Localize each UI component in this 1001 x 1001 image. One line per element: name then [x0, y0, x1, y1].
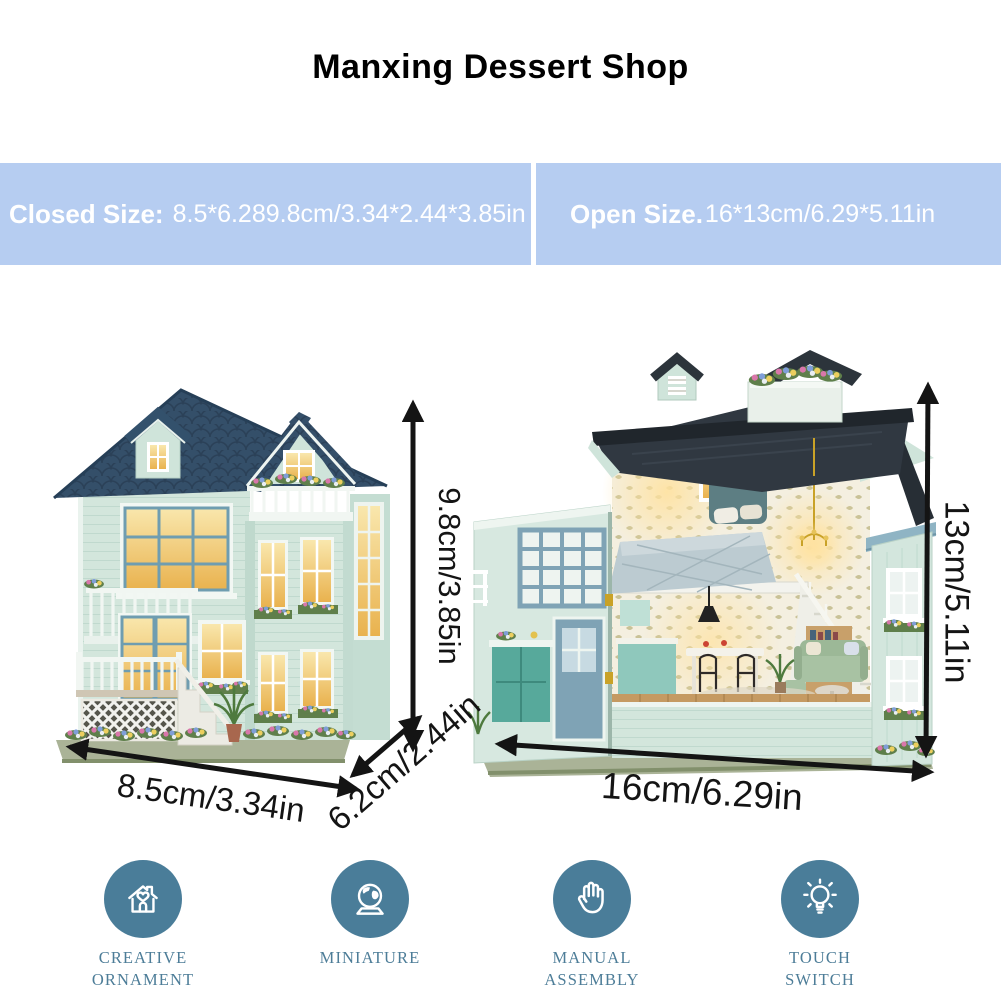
page-title: Manxing Dessert Shop — [0, 48, 1001, 87]
house-heart-icon — [104, 860, 182, 938]
side-wall — [350, 494, 390, 740]
left-door-wing — [462, 505, 613, 763]
closed-size-banner: Closed Size: 8.5*6.289.8cm/3.34*2.44*3.8… — [0, 163, 531, 265]
product-image: Manxing Dessert Shop Closed Size: 8.5*6.… — [0, 0, 1001, 1001]
manual-hand-icon — [553, 860, 631, 938]
open-size-banner: Open Size. 16*13cm/6.29*5.11in — [536, 163, 1001, 265]
feature-creative-ornament: CREATIVE ORNAMENT — [48, 860, 238, 992]
closed-height-dimension: 9.8cm/3.85in — [431, 487, 467, 665]
open-dollhouse-image — [462, 342, 942, 782]
closed-dollhouse-image — [48, 372, 393, 784]
open-size-label: Open Size. — [570, 199, 703, 230]
roof-dormers — [653, 350, 862, 422]
open-height-dimension: 13cm/5.11in — [937, 501, 976, 684]
feature-label: MANUAL ASSEMBLY — [544, 947, 639, 992]
light-bulb-icon — [781, 860, 859, 938]
feature-touch-switch: TOUCH SWITCH — [725, 860, 915, 992]
first-floor-window — [194, 620, 250, 694]
front-base-wall — [612, 702, 874, 758]
feature-label: MINIATURE — [320, 947, 421, 969]
turret-balcony — [247, 473, 355, 521]
feature-label: CREATIVE ORNAMENT — [92, 947, 194, 992]
feature-miniature: MINIATURE — [275, 860, 465, 969]
feature-manual-assembly: MANUAL ASSEMBLY — [497, 860, 687, 992]
miniature-globe-icon — [331, 860, 409, 938]
open-size-value: 16*13cm/6.29*5.11in — [705, 200, 935, 229]
feature-label: TOUCH SWITCH — [785, 947, 855, 992]
closed-size-label: Closed Size: — [9, 199, 164, 230]
right-closed-wing — [866, 522, 936, 766]
closed-size-value: 8.5*6.289.8cm/3.34*2.44*3.85in — [173, 200, 526, 229]
second-floor-window — [116, 503, 237, 599]
